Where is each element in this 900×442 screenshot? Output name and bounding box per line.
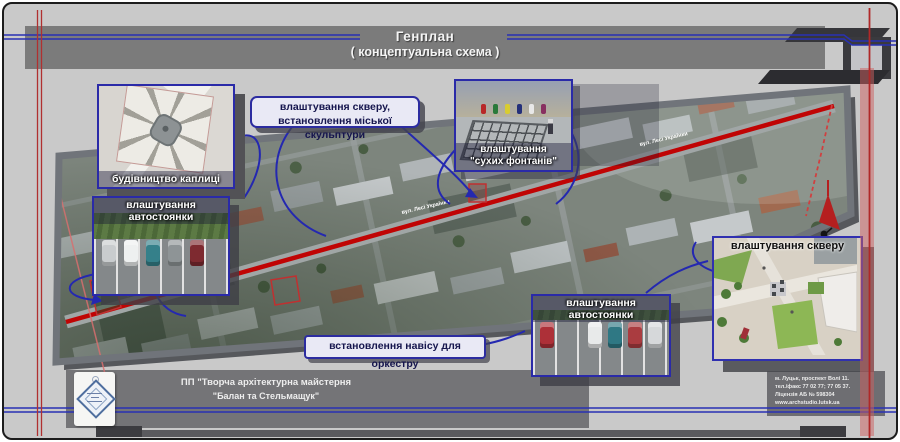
fountains-caption-line2: "сухих фонтанів"	[456, 156, 571, 168]
board-background: Генплан ( концептуальна схема ) м. Луцьк…	[2, 2, 898, 440]
parking-right-caption: влаштування автостоянки	[533, 296, 669, 322]
car-teal	[608, 322, 622, 348]
logo-text-line	[87, 393, 102, 394]
fountains-caption-line1: влаштування	[456, 144, 571, 156]
studio-logo	[74, 372, 115, 426]
inset-parking-left: влаштування автостоянки	[92, 196, 230, 296]
square-3d-render	[714, 238, 857, 355]
inset-square-render: влаштування скверу	[712, 236, 863, 361]
callout-orchestra-canopy: встановлення навісу для оркестру	[304, 335, 486, 359]
chapel-caption: будівництво каплиці	[99, 171, 233, 187]
fountain-photo-people	[456, 81, 571, 117]
car-teal	[146, 240, 160, 266]
presentation-board: Генплан ( концептуальна схема ) м. Луцьк…	[0, 0, 900, 442]
callout-square-sculpture: влаштування скверу, встановлення міської…	[250, 96, 420, 128]
logo-diamond	[76, 379, 116, 419]
car-red	[540, 322, 554, 348]
chapel-plot-drawing	[116, 84, 214, 173]
car-silver	[648, 322, 662, 348]
fountains-caption: влаштування "сухих фонтанів"	[456, 143, 571, 170]
callout-line-1: влаштування скверу,	[252, 100, 418, 114]
faded-collage	[567, 84, 659, 166]
inset-parking-right: влаштування автостоянки	[531, 294, 671, 377]
parking-left-caption: влаштування автостоянки	[94, 198, 228, 224]
car-white	[588, 322, 602, 348]
logo-text-line	[87, 401, 102, 402]
car-gray	[168, 240, 182, 266]
square-right-caption: влаштування скверу	[714, 240, 861, 252]
inset-chapel-plan: будівництво каплиці	[97, 84, 235, 189]
car-silver	[102, 240, 116, 266]
car-white	[124, 240, 138, 266]
callout-line-2: встановлення міської скульптури	[252, 114, 418, 142]
parking-lot	[94, 239, 228, 294]
logo-text-line	[91, 397, 99, 398]
car-darkred	[190, 240, 204, 266]
person-figure	[548, 119, 553, 134]
inset-dry-fountains: влаштування "сухих фонтанів"	[454, 79, 573, 172]
parking-lot	[533, 320, 669, 375]
car-red2	[628, 322, 642, 348]
